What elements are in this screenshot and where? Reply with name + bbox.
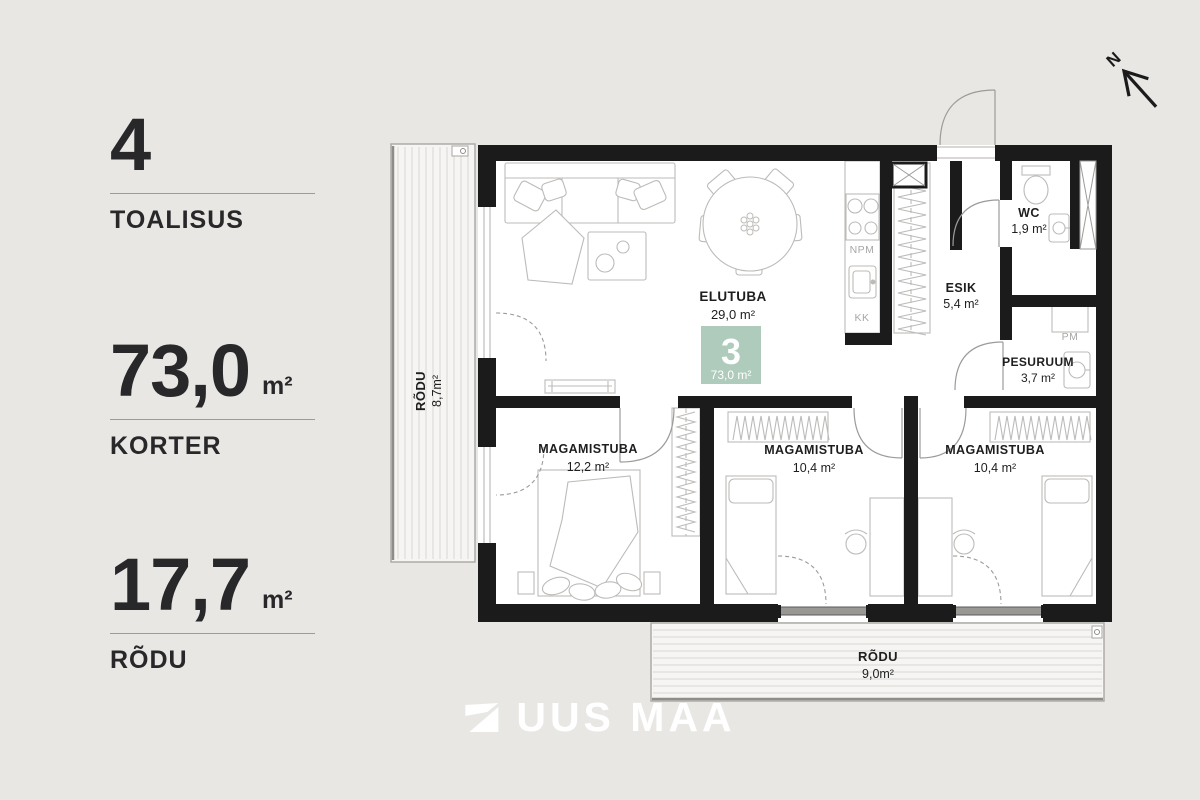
uusmaa-logo-icon (464, 703, 500, 733)
tv-bench-icon (545, 380, 615, 393)
bedroom3-area: 10,4 m² (974, 461, 1016, 475)
balcony-left-area: 8,7m² (430, 375, 444, 407)
hall-label: ESIK (946, 281, 977, 295)
apartment-number-badge: 3 73,0 m² (701, 326, 761, 384)
bedroom2-label: MAGAMISTUBA (764, 443, 864, 457)
balcony-bottom-area: 9,0m² (862, 667, 894, 681)
north-label: N (1103, 48, 1125, 70)
entrance-door (937, 90, 995, 161)
living-room-label: ELUTUBA (699, 289, 766, 304)
window (478, 443, 496, 547)
tall-cabinet-label: KK (854, 312, 869, 324)
nightstand-icon (518, 572, 534, 594)
bedroom1-label: MAGAMISTUBA (538, 442, 638, 456)
washing-machine-icon (1052, 306, 1088, 332)
stove-icon (846, 194, 879, 240)
balcony-left (391, 144, 475, 562)
desk-icon (870, 498, 904, 596)
bathroom-area: 3,7 m² (1021, 371, 1055, 385)
desk-icon (918, 498, 952, 596)
bedroom1-area: 12,2 m² (567, 460, 609, 474)
toilet-icon (1022, 166, 1050, 204)
window (478, 203, 496, 362)
wc-area: 1,9 m² (1011, 222, 1046, 236)
north-arrow-icon: N (1098, 44, 1166, 116)
bedroom3-label: MAGAMISTUBA (945, 443, 1045, 457)
washing-machine-label: PM (1062, 331, 1079, 343)
single-bed-icon (1042, 476, 1092, 596)
badge-area: 73,0 m² (711, 368, 752, 382)
page: 4 TOALISUS 73,0 m² KORTER 17,7 m² RÕDU (0, 0, 1200, 800)
bedroom2-area: 10,4 m² (793, 461, 835, 475)
brand-name: UUS MAA (516, 697, 735, 738)
shaft-icon (892, 163, 926, 187)
double-bed-icon (538, 470, 644, 602)
kitchen-sink-icon (849, 266, 876, 298)
balcony-left-label: RÕDU (413, 371, 428, 411)
dishwasher-label: NPM (850, 244, 875, 256)
balcony-bottom-label: RÕDU (858, 649, 898, 664)
brand-watermark: UUS MAA (464, 697, 735, 738)
shaft-icon (1080, 161, 1096, 249)
living-room-area: 29,0 m² (711, 307, 756, 322)
hall-area: 5,4 m² (943, 297, 978, 311)
bathroom-label: PESURUUM (1002, 355, 1074, 369)
wc-label: WC (1018, 206, 1040, 220)
single-bed-icon (726, 476, 776, 594)
coffee-table-icon (588, 232, 646, 280)
floor-plan: ELUTUBA 29,0 m² 3 73,0 m² WC 1,9 m² ESIK… (0, 0, 1200, 800)
nightstand-icon (644, 572, 660, 594)
badge-number: 3 (721, 331, 741, 372)
wc-sink-icon (1049, 214, 1070, 242)
